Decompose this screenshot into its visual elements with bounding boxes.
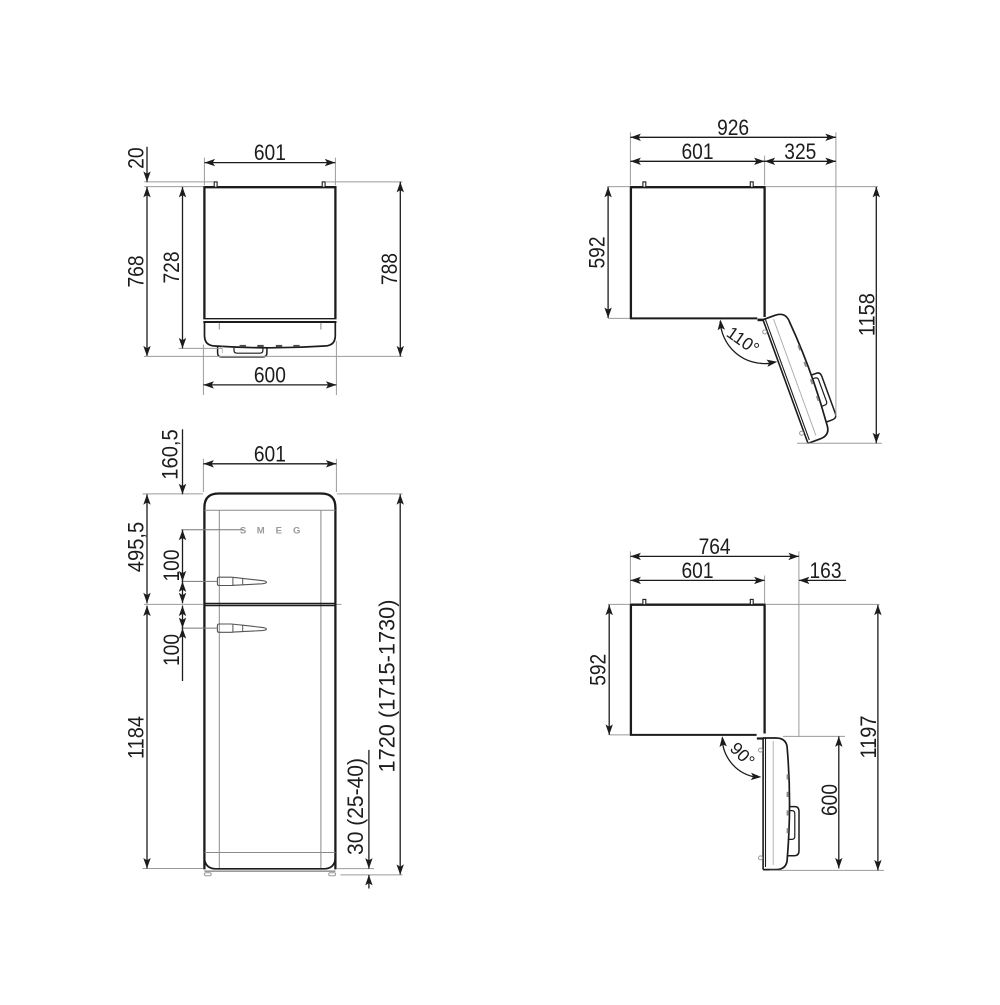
- svg-text:G: G: [293, 525, 300, 536]
- svg-text:30 (25-40): 30 (25-40): [343, 758, 368, 855]
- svg-text:1720 (1715-1730): 1720 (1715-1730): [375, 600, 400, 773]
- svg-text:S: S: [240, 525, 246, 536]
- svg-text:601: 601: [254, 441, 286, 466]
- svg-text:768: 768: [124, 256, 149, 288]
- svg-text:1184: 1184: [124, 716, 149, 759]
- svg-text:495,5: 495,5: [124, 522, 149, 573]
- svg-text:592: 592: [585, 237, 610, 269]
- svg-text:1158: 1158: [854, 293, 879, 336]
- svg-text:100: 100: [159, 634, 184, 666]
- svg-text:600: 600: [254, 363, 286, 388]
- svg-text:M: M: [257, 525, 265, 536]
- svg-text:100: 100: [159, 550, 184, 582]
- svg-text:E: E: [276, 525, 282, 536]
- svg-text:601: 601: [682, 139, 714, 164]
- svg-text:728: 728: [159, 252, 184, 284]
- svg-text:160,5: 160,5: [158, 429, 183, 480]
- svg-text:788: 788: [377, 253, 402, 285]
- svg-text:764: 764: [699, 534, 731, 559]
- svg-text:592: 592: [586, 654, 611, 686]
- svg-text:600: 600: [817, 784, 842, 816]
- svg-text:1197: 1197: [856, 716, 881, 759]
- svg-text:20: 20: [124, 147, 149, 169]
- svg-text:926: 926: [717, 115, 749, 140]
- svg-text:163: 163: [810, 558, 842, 583]
- svg-text:325: 325: [784, 139, 816, 164]
- svg-text:601: 601: [254, 140, 286, 165]
- svg-text:601: 601: [682, 558, 714, 583]
